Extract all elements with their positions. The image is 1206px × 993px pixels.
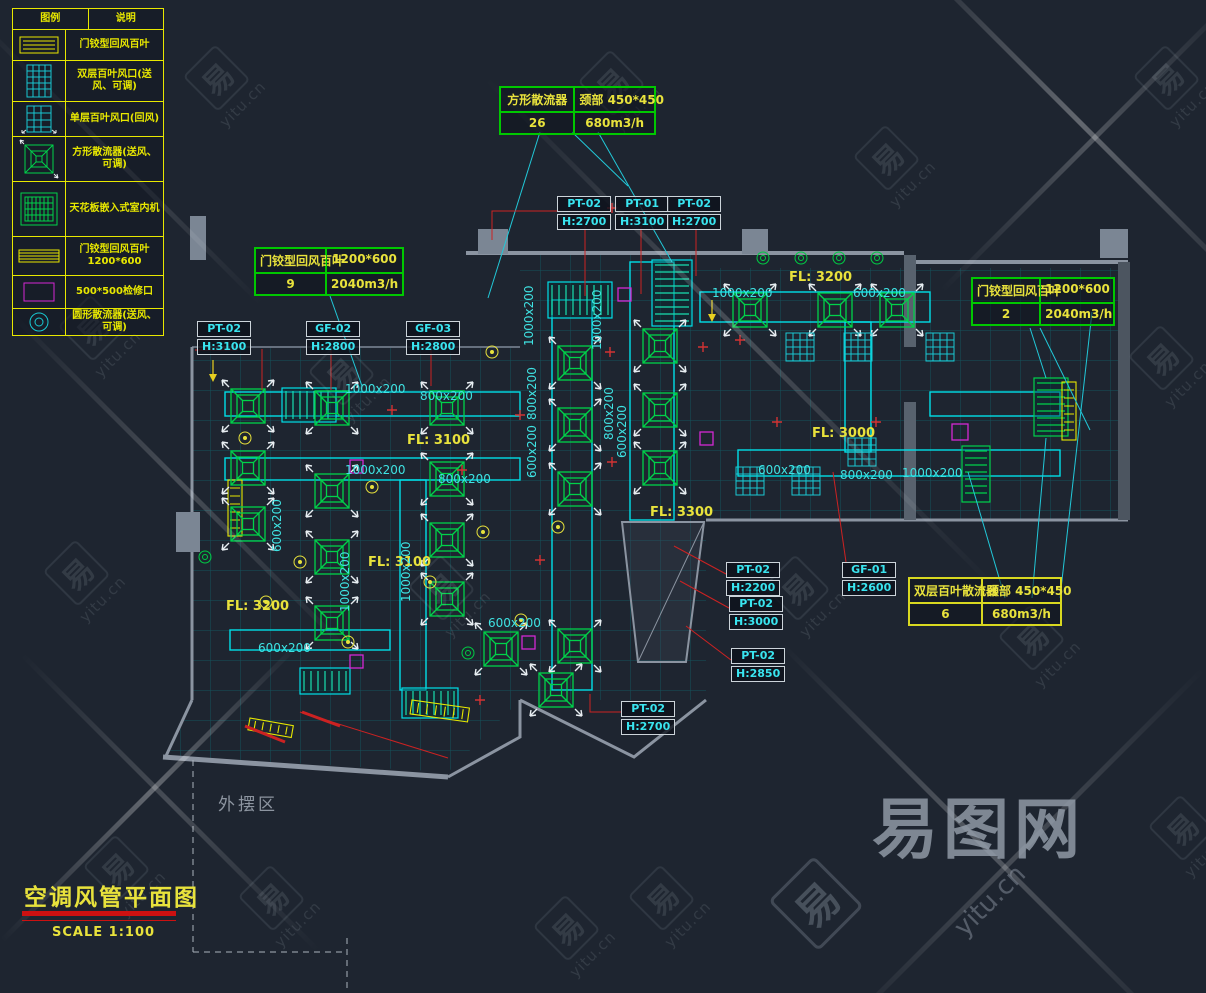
equipment-tag-code: PT-02 <box>667 196 721 212</box>
duct-dimension-label: 1000x200 <box>522 285 536 346</box>
legend-row: 方形散流器(送风、可调) <box>13 136 163 181</box>
diffuser-info-box: 方形散流器 颈部 450*450 26 680m3/h <box>499 86 656 135</box>
legend-row: 圆形散流器(送风、可调) <box>13 308 163 335</box>
legend-header-desc: 说明 <box>89 9 164 29</box>
equipment-tag-code: GF-01 <box>842 562 896 578</box>
equipment-tag-code: PT-02 <box>557 196 611 212</box>
duct-dimension-label: 800x200 <box>840 468 893 482</box>
equipment-tag-height: H:2200 <box>726 580 780 596</box>
legend-row: 双层百叶风口(送风、可调) <box>13 60 163 101</box>
info-box-spec: 颈部 450*450 <box>982 578 1061 603</box>
equipment-tag: PT-01 H:3100 <box>615 196 669 232</box>
legend-label: 单层百叶风口(回风) <box>66 102 163 136</box>
info-box-name: 双层百叶散流器 <box>909 578 982 603</box>
duct-dimension-label: 1000x200 <box>345 463 406 477</box>
duct-dimension-label: 800x200 <box>602 387 616 440</box>
duct-dimension-label: 600x200 <box>258 641 311 655</box>
info-box-count: 2 <box>972 303 1040 325</box>
info-box-flow: 2040m3/h <box>326 273 403 295</box>
legend-row: 500*500检修口 <box>13 275 163 308</box>
legend-header: 图例 说明 <box>13 9 163 29</box>
duct-dimension-label: 600x200 <box>488 616 541 630</box>
legend-label: 门铰型回风百叶1200*600 <box>66 237 163 275</box>
legend-label: 天花板嵌入式室内机 <box>66 182 163 236</box>
legend-label: 门铰型回风百叶 <box>66 30 163 60</box>
double-grille-icon <box>13 61 66 101</box>
info-box-spec: 颈部 450*450 <box>574 87 655 112</box>
louver-1200-icon <box>13 237 66 275</box>
equipment-tag-code: PT-02 <box>731 648 785 664</box>
access-panel-icon <box>13 276 66 308</box>
equipment-tag: PT-02 H:2200 <box>726 562 780 598</box>
return-louver-icon <box>13 30 66 60</box>
equipment-tag-code: GF-02 <box>306 321 360 337</box>
legend-label: 双层百叶风口(送风、可调) <box>66 61 163 101</box>
cad-canvas: 易 yitu.cn 易 yitu.cn 易 yitu.cn 易 yitu.cn … <box>0 0 1206 993</box>
duct-dimension-label: 1000x200 <box>399 541 413 602</box>
equipment-tag-height: H:3100 <box>197 339 251 355</box>
round-diffuser-icon <box>13 309 66 335</box>
duct-dimension-label: 1000x200 <box>345 382 406 396</box>
drawing-title: 空调风管平面图 <box>24 878 199 912</box>
equipment-tag-height: H:3000 <box>729 614 783 630</box>
equipment-tag-code: PT-02 <box>729 596 783 612</box>
floor-level-label: FL: 3100 <box>407 433 470 448</box>
equipment-tag: PT-02 H:2700 <box>667 196 721 232</box>
duct-dimension-label: 600x200 <box>525 425 539 478</box>
info-box-name: 门铰型回风百叶 <box>255 248 326 273</box>
single-grille-icon <box>13 102 66 136</box>
legend-row: 天花板嵌入式室内机 <box>13 181 163 236</box>
info-box-count: 26 <box>500 112 574 134</box>
floor-level-label: FL: 3200 <box>226 599 289 614</box>
duct-dimension-label: 1000x200 <box>590 289 604 350</box>
legend-label: 方形散流器(送风、可调) <box>66 137 163 181</box>
outdoor-area-label: 外摆区 <box>218 790 278 815</box>
drawing-scale: SCALE 1:100 <box>52 925 155 940</box>
duct-dimension-label: 600x200 <box>270 499 284 552</box>
legend-header-symbol: 图例 <box>13 9 89 29</box>
floor-level-label: FL: 3000 <box>812 426 875 441</box>
equipment-tag-height: H:2800 <box>306 339 360 355</box>
info-box-count: 6 <box>909 603 982 625</box>
floor-level-label: FL: 3300 <box>650 505 713 520</box>
info-box-spec: 1200*600 <box>1040 278 1114 303</box>
legend-row: 单层百叶风口(回风) <box>13 101 163 136</box>
equipment-tag-code: PT-01 <box>615 196 669 212</box>
info-box-flow: 2040m3/h <box>1040 303 1114 325</box>
duct-dimension-label: 600x200 <box>853 286 906 300</box>
equipment-tag-height: H:2800 <box>406 339 460 355</box>
duct-dimension-label: 1000x200 <box>712 286 773 300</box>
title-underline-bar <box>22 911 176 916</box>
duct-dimension-label: 800x200 <box>525 367 539 420</box>
diffuser-info-box: 双层百叶散流器 颈部 450*450 6 680m3/h <box>908 577 1062 626</box>
info-box-name: 门铰型回风百叶 <box>972 278 1040 303</box>
info-box-count: 9 <box>255 273 326 295</box>
legend-table: 图例 说明 门铰型回风百叶 双层百叶风口(送风、可调) 单层百叶风口(回风) <box>12 8 164 336</box>
info-box-name: 方形散流器 <box>500 87 574 112</box>
equipment-tag-height: H:2850 <box>731 666 785 682</box>
legend-row: 门铰型回风百叶 <box>13 29 163 60</box>
diffuser-info-box: 门铰型回风百叶 1200*600 2 2040m3/h <box>971 277 1115 326</box>
diffuser-info-box: 门铰型回风百叶 1200*600 9 2040m3/h <box>254 247 404 296</box>
equipment-tag-code: GF-03 <box>406 321 460 337</box>
info-box-flow: 680m3/h <box>574 112 655 134</box>
duct-dimension-label: 800x200 <box>438 472 491 486</box>
duct-dimension-label: 800x200 <box>420 389 473 403</box>
equipment-tag-height: H:3100 <box>615 214 669 230</box>
equipment-tag: PT-02 H:2850 <box>731 648 785 684</box>
duct-dimension-label: 600x200 <box>758 463 811 477</box>
equipment-tag-height: H:2700 <box>557 214 611 230</box>
info-box-flow: 680m3/h <box>982 603 1061 625</box>
duct-dimension-label: 1000x200 <box>902 466 963 480</box>
equipment-tag-height: H:2700 <box>621 719 675 735</box>
equipment-tag-code: PT-02 <box>197 321 251 337</box>
equipment-tag-height: H:2700 <box>667 214 721 230</box>
floor-level-label: FL: 3200 <box>789 270 852 285</box>
equipment-tag: PT-02 H:3000 <box>729 596 783 632</box>
equipment-tag: PT-02 H:3100 <box>197 321 251 357</box>
equipment-tag: GF-02 H:2800 <box>306 321 360 357</box>
legend-label: 500*500检修口 <box>66 276 163 308</box>
duct-dimension-label: 600x200 <box>615 405 629 458</box>
equipment-tag-code: PT-02 <box>726 562 780 578</box>
legend-row: 门铰型回风百叶1200*600 <box>13 236 163 275</box>
equipment-tag: GF-01 H:2600 <box>842 562 896 598</box>
duct-dimension-label: 1000x200 <box>338 551 352 612</box>
legend-label: 圆形散流器(送风、可调) <box>66 309 163 335</box>
info-box-spec: 1200*600 <box>326 248 403 273</box>
equipment-tag-code: PT-02 <box>621 701 675 717</box>
square-diffuser-icon <box>13 137 66 181</box>
equipment-tag: GF-03 H:2800 <box>406 321 460 357</box>
title-underline-line <box>22 920 176 921</box>
equipment-tag-height: H:2600 <box>842 580 896 596</box>
floor-plan-linework <box>0 0 1206 993</box>
equipment-tag: PT-02 H:2700 <box>557 196 611 232</box>
equipment-tag: PT-02 H:2700 <box>621 701 675 737</box>
cassette-unit-icon <box>13 182 66 236</box>
